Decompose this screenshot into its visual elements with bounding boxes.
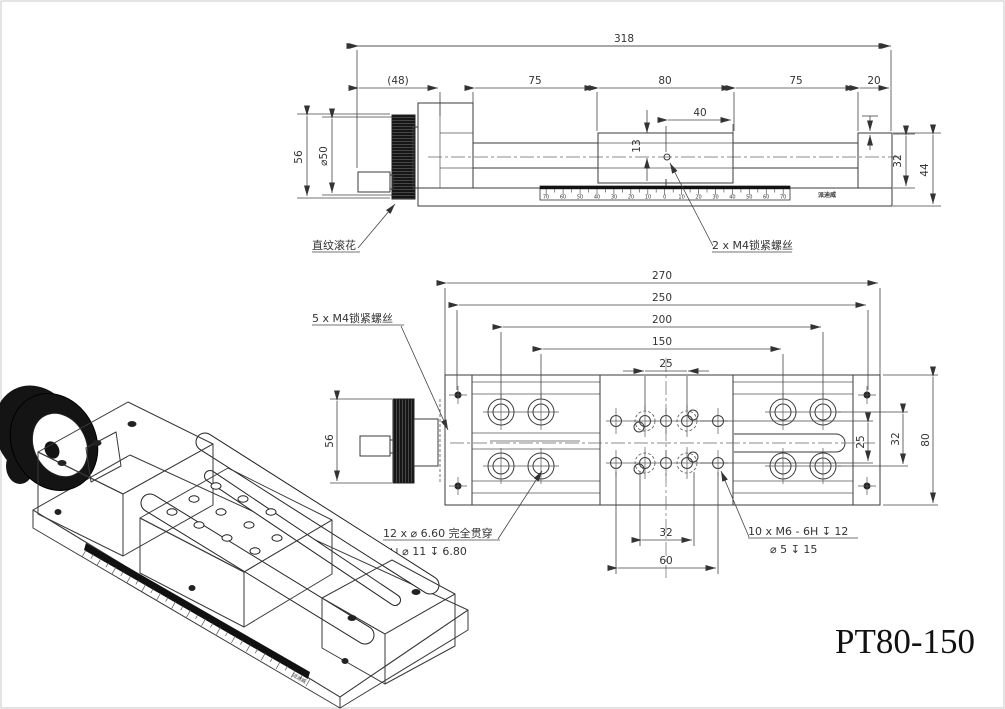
part-number-title: PT80-150: [835, 622, 975, 661]
svg-text:10: 10: [678, 195, 684, 201]
svg-text:50: 50: [577, 195, 583, 201]
ruler-numbers: 70 60 50 40 30 20 10 0 10 20 30 40 50 60…: [543, 195, 787, 201]
svg-text:60: 60: [560, 195, 566, 201]
page-frame: [1, 1, 1004, 708]
svg-text:32: 32: [890, 432, 902, 445]
svg-text:40: 40: [594, 195, 600, 201]
svg-text:270: 270: [652, 270, 672, 282]
svg-text:80: 80: [658, 75, 671, 87]
svg-text:13: 13: [631, 139, 643, 152]
svg-text:5 x M4锁紧螺丝: 5 x M4锁紧螺丝: [312, 311, 393, 325]
svg-text:50: 50: [746, 195, 752, 201]
svg-text:30: 30: [712, 195, 718, 201]
svg-text:直纹滚花: 直纹滚花: [312, 238, 356, 252]
dim-carriage-40: 40: [666, 107, 733, 152]
right-rail-lines: [733, 382, 853, 493]
plan-lock-knob: [360, 436, 390, 456]
svg-text:25: 25: [659, 358, 672, 370]
svg-text:70: 70: [543, 195, 549, 201]
callout-threaded-holes: 10 x M6 - 6H ↧ 12 ⌀ 5 ↧ 15: [721, 471, 858, 556]
svg-text:⌀ 5 ↧ 15: ⌀ 5 ↧ 15: [770, 543, 817, 556]
dim-wheel-dia-50: ⌀50: [318, 117, 392, 195]
end-cap-screws: [449, 386, 876, 495]
top-view: 70 60 50 40 30 20 10 0 10 20 30 40 50 60…: [293, 33, 941, 252]
svg-text:56: 56: [324, 434, 336, 448]
right-end-block: [858, 133, 892, 188]
label-lock-screws-2xM4: 2 x M4锁紧螺丝: [670, 163, 793, 252]
dim-overall-318: 318: [357, 33, 891, 168]
svg-text:70: 70: [780, 195, 786, 201]
iso-ruler-strip: [84, 543, 310, 679]
svg-text:318: 318: [614, 33, 634, 45]
svg-text:75: 75: [528, 75, 541, 87]
iso-handwheel: [0, 371, 121, 506]
label-lock-screws-5xM4: 5 x M4锁紧螺丝: [312, 311, 448, 430]
svg-text:32: 32: [659, 527, 672, 539]
svg-text:44: 44: [919, 163, 931, 177]
svg-text:2 x M4锁紧螺丝: 2 x M4锁紧螺丝: [712, 238, 793, 252]
svg-text:40: 40: [693, 107, 706, 119]
dim-wheel-56: 56: [293, 114, 390, 198]
svg-text:60: 60: [763, 195, 769, 201]
dim-right-32: 32: [838, 412, 908, 466]
handwheel-knurled: [392, 115, 415, 199]
svg-text:32: 32: [892, 154, 904, 167]
dim-200: 200: [501, 314, 823, 398]
svg-text:20: 20: [695, 195, 701, 201]
carriage-holes: [606, 405, 728, 479]
dim-right-32: 32: [892, 134, 915, 188]
left-end-block: [418, 103, 473, 188]
dim-plan-56: 56: [324, 399, 392, 483]
dim-height-13: 13: [631, 110, 647, 181]
svg-text:150: 150: [652, 336, 672, 348]
counterbore-holes: [483, 394, 841, 484]
svg-text:10: 10: [645, 195, 651, 201]
svg-text:20: 20: [867, 75, 880, 87]
svg-text:⌀50: ⌀50: [318, 146, 330, 166]
svg-text:10 x M6 - 6H ↧ 12: 10 x M6 - 6H ↧ 12: [748, 525, 848, 538]
svg-text:75: 75: [789, 75, 802, 87]
dim-bottom-32: 32: [640, 472, 694, 546]
carriage-side: [598, 133, 733, 183]
lock-knob: [358, 172, 390, 192]
label-knurl: 直纹滚花: [312, 204, 395, 252]
dim-right-44: 44: [893, 133, 941, 206]
svg-text:20: 20: [628, 195, 634, 201]
svg-text:200: 200: [652, 314, 672, 326]
svg-text:12 x ⌀ 6.60 完全贯穿: 12 x ⌀ 6.60 完全贯穿: [383, 526, 493, 540]
dim-bottom-60: 60: [616, 472, 718, 574]
svg-text:25: 25: [855, 435, 867, 448]
svg-text:80: 80: [920, 433, 932, 446]
svg-text:60: 60: [659, 555, 672, 567]
svg-text:(48): (48): [387, 75, 409, 87]
brand-text: 派迪威: [818, 191, 836, 199]
callout-through-holes: 12 x ⌀ 6.60 完全贯穿 ⊔ ⌀ 11 ↧ 6.80: [383, 471, 542, 558]
plan-view: 270 250 200 150 25 56: [312, 270, 938, 578]
svg-text:40: 40: [729, 195, 735, 201]
plan-handwheel: [360, 399, 440, 483]
svg-text:56: 56: [293, 150, 305, 164]
drawing-page: 70 60 50 40 30 20 10 0 10 20 30 40 50 60…: [0, 0, 1005, 709]
base-outline: [445, 375, 880, 505]
drawing-canvas: 70 60 50 40 30 20 10 0 10 20 30 40 50 60…: [0, 0, 1005, 709]
svg-text:250: 250: [652, 292, 672, 304]
svg-text:0: 0: [663, 195, 666, 201]
svg-text:30: 30: [611, 195, 617, 201]
